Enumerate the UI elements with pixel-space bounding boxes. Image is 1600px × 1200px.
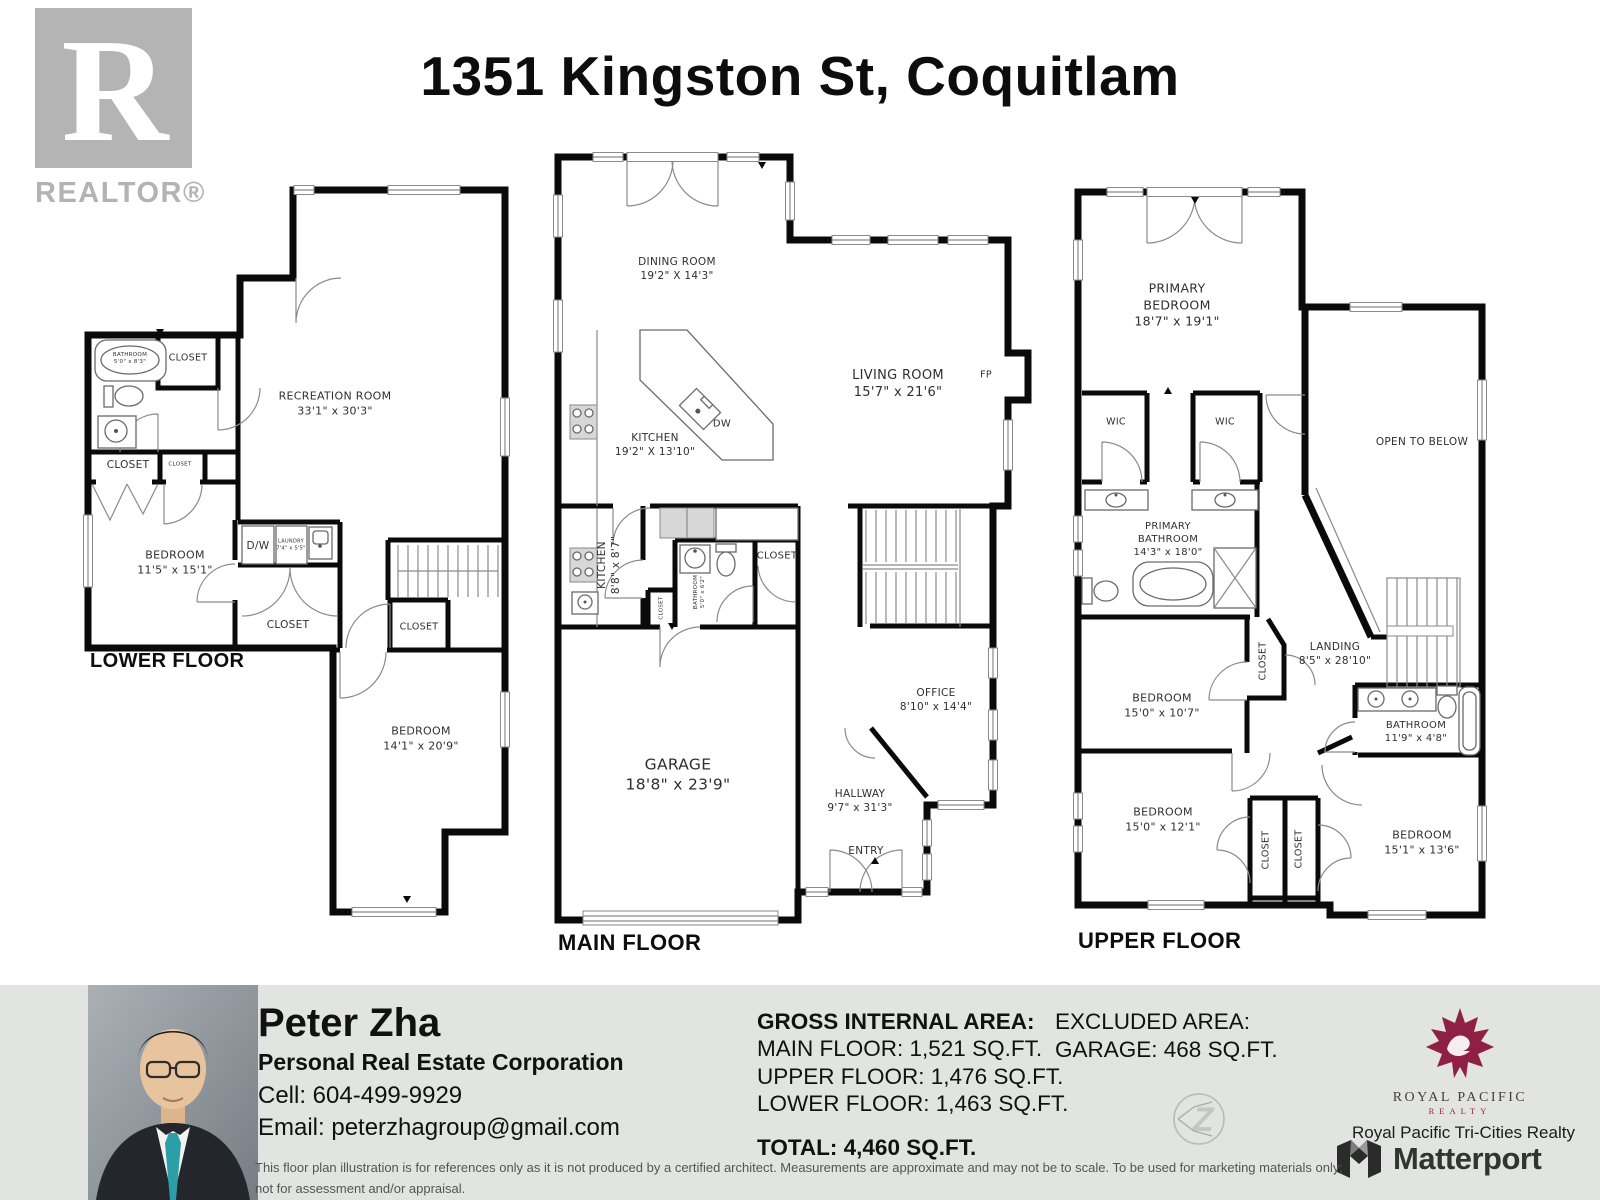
room-dims: 8'5" x 28'10" bbox=[1299, 655, 1371, 669]
room-name: OFFICE bbox=[916, 687, 955, 701]
room-dims: 15'0" x 12'1" bbox=[1125, 820, 1201, 835]
room-name: GARAGE bbox=[645, 755, 712, 775]
maple-leaf-icon bbox=[1414, 1005, 1506, 1083]
room-dims: 11'5" x 15'1" bbox=[137, 563, 213, 578]
room-dims: 9'7" x 31'3" bbox=[827, 802, 892, 816]
page-title: 1351 Kingston St, Coquitlam bbox=[420, 44, 1179, 108]
closet-label: CLOSET bbox=[169, 353, 208, 366]
room-dims: 5'0" x 8'3" bbox=[114, 359, 146, 366]
stairs-icon bbox=[398, 545, 498, 597]
dishwasher-label: D/W bbox=[247, 540, 270, 554]
label-line: CLOSET bbox=[400, 622, 439, 635]
closet-label: CLOSET bbox=[107, 459, 150, 473]
label-line: CLOSET bbox=[267, 619, 310, 633]
agent-email: Email: peterzhagroup@gmail.com bbox=[258, 1114, 624, 1142]
room-label-garage: GARAGE 18'8" x 23'9" bbox=[626, 755, 731, 796]
room-label-kitchen2: KITCHEN 8'8" x 8'7" bbox=[596, 536, 624, 594]
agent-info: Peter Zha Personal Real Estate Corporati… bbox=[258, 1002, 624, 1142]
room-name: BATHROOM bbox=[1386, 719, 1446, 732]
gross-area-heading: GROSS INTERNAL AREA: bbox=[757, 1008, 1068, 1035]
label-line: CLOSET bbox=[1294, 830, 1307, 869]
room-label-upper-bathroom: BATHROOM 11'9" x 4'8" bbox=[1385, 719, 1447, 745]
closet-label: CLOSET bbox=[1261, 831, 1274, 870]
closet-label: CLOSET bbox=[400, 622, 439, 635]
footer-band: Peter Zha Personal Real Estate Corporati… bbox=[0, 985, 1600, 1200]
label-line: D/W bbox=[247, 540, 270, 554]
toilet-icon bbox=[104, 386, 143, 407]
realty-wordmark: REALTY bbox=[1352, 1106, 1568, 1116]
room-dims: 15'0" x 10'7" bbox=[1124, 706, 1200, 721]
room-label-kitchen: KITCHEN 19'2" X 13'10" bbox=[615, 432, 695, 460]
entry-label: ENTRY bbox=[848, 845, 883, 859]
svg-text:R: R bbox=[62, 9, 171, 170]
room-label-lower-bedroom2: BEDROOM 14'1" x 20'9" bbox=[383, 724, 459, 753]
room-label-upper-bedroom1: BEDROOM 15'0" x 10'7" bbox=[1124, 691, 1200, 720]
pantry-counter bbox=[716, 508, 798, 540]
vanity-sinks bbox=[1085, 490, 1258, 510]
label-line: FP bbox=[980, 370, 992, 383]
label-line: ENTRY bbox=[848, 845, 883, 859]
agent-name: Peter Zha bbox=[258, 1002, 624, 1044]
room-name: PRIMARY bbox=[1149, 280, 1206, 297]
sink2-icon bbox=[572, 592, 598, 614]
closet-label: CLOSET bbox=[1294, 830, 1307, 869]
excluded-garage-area: GARAGE: 468 SQ.FT. bbox=[1055, 1036, 1278, 1064]
room-name: PRIMARY bbox=[1145, 520, 1191, 533]
disclaimer-line1: This floor plan illustration is for refe… bbox=[255, 1157, 1345, 1178]
label-line: CLOSET bbox=[168, 461, 191, 468]
matterport-logo: Matterport bbox=[1337, 1137, 1541, 1181]
room-name: BATHROOM bbox=[113, 352, 147, 359]
z-watermark: Z bbox=[1170, 1090, 1228, 1153]
lower-floor-area: LOWER FLOOR: 1,463 SQ.FT. bbox=[757, 1090, 1068, 1118]
royal-pacific-logo: ROYAL PACIFIC REALTY Royal Pacific Tri-C… bbox=[1352, 1005, 1568, 1143]
label-line: CLOSET bbox=[1258, 642, 1271, 681]
label-line: CLOSET bbox=[107, 459, 150, 473]
main-floor-plan bbox=[554, 153, 1029, 926]
room-name: BEDROOM bbox=[1132, 691, 1192, 706]
room-label-laundry: LAUNDRY 7'4" x 5'5" bbox=[276, 538, 306, 551]
realtor-wordmark: REALTOR® bbox=[35, 177, 205, 210]
agent-cell: Cell: 604-499-9929 bbox=[258, 1082, 624, 1110]
wic-label: WIC bbox=[1215, 417, 1235, 430]
room-label-living: LIVING ROOM 15'7" x 21'6" bbox=[852, 367, 944, 401]
room-label-primary-bathroom: PRIMARY BATHROOM 14'3" x 18'0" bbox=[1133, 520, 1202, 560]
lower-floor-name: LOWER FLOOR bbox=[90, 650, 244, 673]
excluded-area-summary: EXCLUDED AREA: GARAGE: 468 SQ.FT. bbox=[1055, 1008, 1278, 1063]
powder-room-fixtures bbox=[680, 544, 736, 576]
room-dims: 19'2" X 14'3" bbox=[640, 270, 713, 284]
room-name: KITCHEN bbox=[596, 541, 610, 589]
room-dims: 8'10" x 14'4" bbox=[900, 701, 972, 715]
room-label-recreation: RECREATION ROOM 33'1" x 30'3" bbox=[279, 389, 392, 418]
room-label-landing: LANDING 8'5" x 28'10" bbox=[1299, 641, 1371, 669]
room-dims: 14'3" x 18'0" bbox=[1133, 547, 1202, 560]
stove2-icon bbox=[570, 548, 597, 582]
room-dims: 33'1" x 30'3" bbox=[297, 404, 373, 419]
main-floor-name: MAIN FLOOR bbox=[558, 930, 701, 956]
label-line: CLOSET bbox=[169, 353, 208, 366]
label-line: CLOSET bbox=[658, 596, 665, 619]
label-line: CLOSET bbox=[757, 549, 798, 562]
disclaimer-line2: not for assessment and/or appraisal. bbox=[255, 1178, 1345, 1199]
disclaimer: This floor plan illustration is for refe… bbox=[255, 1157, 1345, 1200]
room-name: DINING ROOM bbox=[638, 256, 716, 270]
label-line: CLOSET bbox=[1261, 831, 1274, 870]
matterport-wordmark: Matterport bbox=[1393, 1141, 1541, 1177]
room-dims: 18'8" x 23'9" bbox=[626, 775, 731, 795]
room-dims: 7'4" x 5'5" bbox=[276, 545, 306, 552]
room-label-primary-bedroom: PRIMARY BEDROOM 18'7" x 19'1" bbox=[1134, 280, 1219, 330]
room-name: BATHROOM bbox=[1138, 533, 1198, 546]
room-name: LANDING bbox=[1310, 641, 1360, 655]
label-line: OPEN TO BELOW bbox=[1376, 436, 1468, 450]
room-label-hallway: HALLWAY 9'7" x 31'3" bbox=[827, 788, 892, 816]
stove-icon bbox=[570, 405, 597, 439]
room-name: BEDROOM bbox=[1392, 828, 1452, 843]
room-label-office: OFFICE 8'10" x 14'4" bbox=[900, 687, 972, 715]
room-dims: 15'1" x 13'6" bbox=[1384, 843, 1460, 858]
room-dims: 11'9" x 4'8" bbox=[1385, 732, 1447, 745]
closet-label: CLOSET bbox=[757, 549, 798, 562]
room-dims: 14'1" x 20'9" bbox=[383, 739, 459, 754]
room-label-upper-bedroom3: BEDROOM 15'1" x 13'6" bbox=[1384, 828, 1460, 857]
upper-floor-area: UPPER FLOOR: 1,476 SQ.FT. bbox=[757, 1063, 1068, 1091]
room-dims: 5'0" x 6'2" bbox=[700, 576, 707, 608]
open-to-below-label: OPEN TO BELOW bbox=[1376, 436, 1468, 450]
sink-icon bbox=[98, 416, 136, 448]
room-name: KITCHEN bbox=[631, 432, 679, 446]
agent-photo bbox=[88, 985, 258, 1200]
closet-label: CLOSET bbox=[267, 619, 310, 633]
realtor-r-icon: R bbox=[35, 8, 192, 170]
room-name: LIVING ROOM bbox=[852, 367, 944, 384]
excluded-area-heading: EXCLUDED AREA: bbox=[1055, 1008, 1278, 1036]
room-label-dining: DINING ROOM 19'2" X 14'3" bbox=[638, 256, 716, 284]
toilet-icon bbox=[1082, 578, 1118, 604]
label-line: WIC bbox=[1215, 417, 1235, 430]
room-dims: 15'7" x 21'6" bbox=[854, 384, 943, 401]
royal-pacific-wordmark: ROYAL PACIFIC bbox=[1352, 1090, 1568, 1106]
room-label-upper-bedroom2: BEDROOM 15'0" x 12'1" bbox=[1125, 805, 1201, 834]
room-name: BEDROOM bbox=[1143, 297, 1210, 314]
shower-icon bbox=[1214, 548, 1256, 608]
stairs-icon bbox=[862, 508, 960, 627]
room-name: BEDROOM bbox=[391, 724, 451, 739]
label-line: DW bbox=[713, 417, 731, 430]
main-floor-area: MAIN FLOOR: 1,521 SQ.FT. bbox=[757, 1035, 1068, 1063]
closet-label: CLOSET bbox=[168, 461, 191, 468]
room-dims: 19'2" X 13'10" bbox=[615, 446, 695, 460]
room-label-lower-bedroom1: BEDROOM 11'5" x 15'1" bbox=[137, 548, 213, 577]
closet-label: CLOSET bbox=[1258, 642, 1271, 681]
room-name: LAUNDRY bbox=[278, 538, 304, 545]
room-name: BEDROOM bbox=[1133, 805, 1193, 820]
room-dims: 8'8" x 8'7" bbox=[610, 536, 624, 594]
dishwasher-island-label: DW bbox=[713, 417, 731, 430]
gross-area-summary: GROSS INTERNAL AREA: MAIN FLOOR: 1,521 S… bbox=[757, 1008, 1068, 1161]
realtor-logo: R REALTOR® bbox=[35, 8, 205, 210]
room-name: HALLWAY bbox=[835, 788, 886, 802]
agent-title: Personal Real Estate Corporation bbox=[258, 1049, 624, 1075]
room-label-lower-bathroom: BATHROOM 5'0" x 8'3" bbox=[113, 352, 147, 367]
label-line: WIC bbox=[1106, 417, 1126, 430]
floor-plan-flyer: R REALTOR® 1351 Kingston St, Coquitlam L… bbox=[0, 0, 1600, 1200]
room-name: BATHROOM bbox=[693, 575, 700, 609]
bathtub-icon bbox=[1133, 562, 1213, 606]
room-label-main-bathroom: BATHROOM 5'0" x 6'2" bbox=[693, 575, 708, 609]
fridge-icon bbox=[660, 508, 714, 538]
upper-floor-name: UPPER FLOOR bbox=[1078, 928, 1241, 954]
room-name: RECREATION ROOM bbox=[279, 389, 392, 404]
room-dims: 18'7" x 19'1" bbox=[1134, 313, 1219, 330]
room-name: BEDROOM bbox=[145, 548, 205, 563]
closet-label: CLOSET bbox=[658, 596, 665, 619]
wic-label: WIC bbox=[1106, 417, 1126, 430]
fireplace-label: FP bbox=[980, 370, 992, 383]
